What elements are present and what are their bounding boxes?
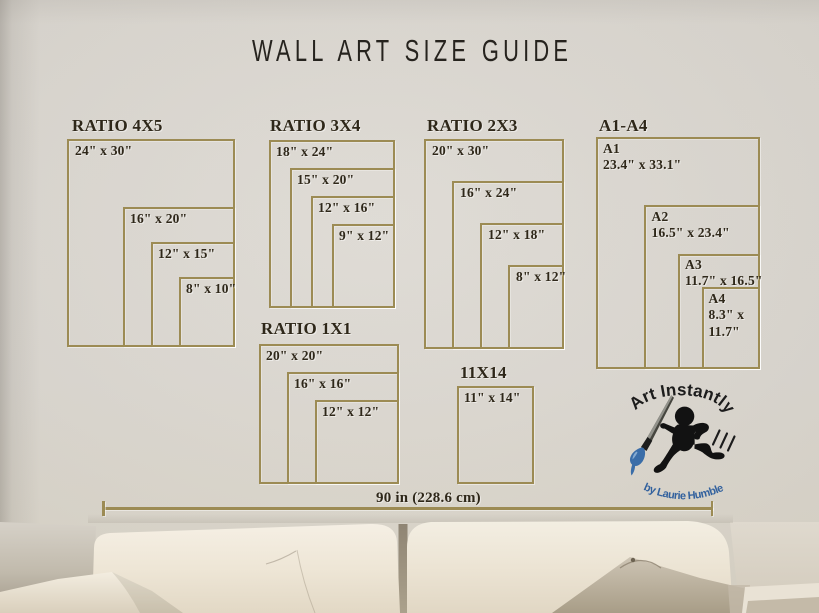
svg-text:by Laurie Humble: by Laurie Humble [642,481,726,502]
